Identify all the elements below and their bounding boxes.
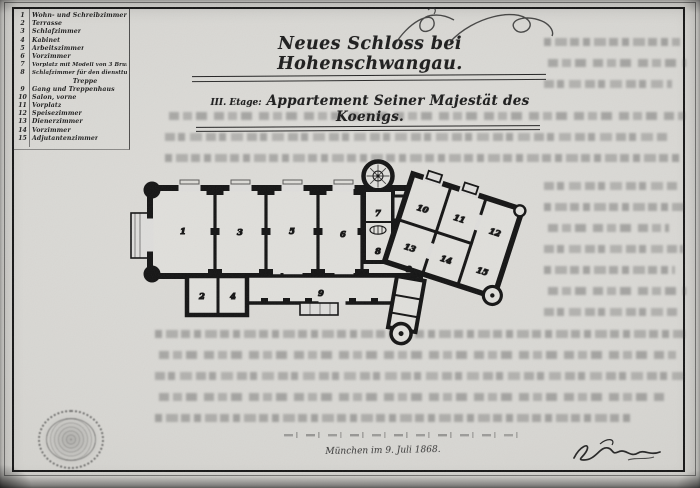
legend-row: 12Speisezimmer [16,110,127,118]
legend-label: Vorplatz [29,102,61,110]
legend-number: 6 [16,53,29,61]
legend-label: Salon, vorne [29,94,76,102]
room-label: 6 [340,230,346,240]
bleedthrough-text-block [544,182,686,329]
subtitle-text: Appartement Seiner Majestät des Koenigs. [267,93,530,125]
room-label: 3 [237,228,243,238]
archive-stamp [38,410,104,469]
legend-label: Speisezimmer [29,110,82,118]
calligraphic-flourish-icon [388,6,558,50]
page-subtitle: III. Etage: Appartement Seiner Majestät … [190,93,550,125]
legend-label: Arbeitszimmer [29,45,84,53]
scale-bar [282,428,532,442]
legend-number: 5 [16,45,29,53]
legend-row: 9Gang und Treppenhaus [16,86,127,94]
bleedthrough-text-row [544,203,686,211]
room-label: 5 [289,227,295,237]
legend-label: Schlafzimmer [29,28,81,36]
legend-number: 2 [16,20,29,28]
legend-number: 12 [16,110,29,118]
subtitle-underline [196,125,540,132]
south-projecting-rooms [187,276,247,315]
legend-row: 6Vorzimmer [16,53,127,61]
legend-number: 15 [16,135,29,143]
legend-label: Kabinet [29,37,60,45]
legend-number: 4 [16,37,29,45]
legend-number: 3 [16,28,29,36]
legend-row: 14Vorzimmer [16,127,127,135]
architect-signature [570,436,665,468]
bleedthrough-text-block [544,38,686,101]
legend-number: 14 [16,127,29,135]
legend-row: 11Vorplatz [16,102,127,110]
room-label: 1 [180,227,186,237]
legend-number: 1 [16,12,29,20]
legend-row: 10Salon, vorne [16,94,127,102]
bleedthrough-text-row [155,393,666,401]
legend-label: Wohn- und Schreibzimmer [29,12,127,20]
archive-stamp-inner-ring [46,418,96,461]
bleedthrough-text-row [165,133,669,141]
legend-number: 11 [16,102,29,110]
legend-row: 1Wohn- und Schreibzimmer [16,12,127,20]
floor-plan-drawing: 10 11 12 13 14 15 1 2 3 4 5 6 7 8 9 9 [125,148,565,363]
floor-prefix: III. Etage: [210,98,261,108]
legend-number: 9 [16,86,29,94]
legend-label: Gang und Treppenhaus [29,86,115,94]
title-underline [192,74,546,82]
west-balcony [131,213,149,258]
legend-row: 5Arbeitszimmer [16,45,127,53]
legend-label: Dienerzimmer [29,118,83,126]
legend-label: Adjutantenzimmer [29,135,98,143]
legend-label: Terrasse [29,20,62,28]
legend-row: 7Vorplatz mit Modell von 3 Brunnen [16,61,127,69]
south-balcony [300,303,338,315]
legend-row: 4Kabinet [16,37,127,45]
bleedthrough-text-row [544,80,672,88]
date-line: München im 9. Juli 1868. [298,445,468,458]
legend-label: Vorzimmer [29,127,71,135]
legend-row: 3Schlafzimmer [16,28,127,36]
bleedthrough-text-row [544,59,686,67]
room-label: 9 [318,289,324,299]
legend-number: 13 [16,118,29,126]
room-label: 9 [406,265,412,275]
legend-row: 15Adjutantenzimmer [16,135,127,143]
bleedthrough-text-row [544,287,686,295]
bleedthrough-text-row [155,372,687,380]
legend-row: 2Terrasse [16,20,127,28]
legend-label: Vorzimmer [29,53,71,61]
southwest-tower [144,266,161,283]
room-legend: 1Wohn- und Schreibzimmer 2Terrasse 3Schl… [12,7,130,150]
legend-number: 8 [16,69,29,77]
scanned-floor-plan-page: 1Wohn- und Schreibzimmer 2Terrasse 3Schl… [0,0,700,488]
legend-label: Schlafzimmer für den diensttuenden Lakai… [29,69,127,77]
legend-row: 8Schlafzimmer für den diensttuenden Laka… [16,69,127,77]
legend-row: Treppe [16,78,127,86]
room-label: 8 [375,247,381,257]
legend-row: 13Dienerzimmer [16,118,127,126]
bleedthrough-text-row [155,414,634,422]
legend-number: 10 [16,94,29,102]
bleedthrough-text-row [544,38,680,46]
room-label: 7 [375,209,381,219]
northwest-tower [144,182,161,199]
room-label: 4 [230,292,236,302]
legend-label: Vorplatz mit Modell von 3 Brunnen [29,61,127,69]
legend-number: 7 [16,61,29,69]
room-label: 2 [198,292,205,302]
stair-tower [364,162,393,191]
legend-label: Treppe [70,78,98,86]
